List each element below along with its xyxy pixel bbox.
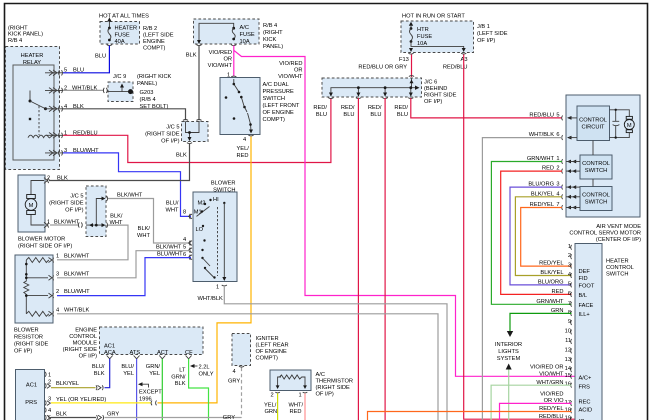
svg-text:RED/: RED/ <box>394 105 408 111</box>
svg-text:COMPT): COMPT) <box>143 46 166 52</box>
svg-text:(RIGHT SIDE: (RIGHT SIDE <box>316 385 351 391</box>
svg-text:5: 5 <box>183 245 186 251</box>
svg-text:BLK/WHT: BLK/WHT <box>64 271 90 277</box>
svg-text:IGNITER: IGNITER <box>256 336 279 342</box>
svg-text:BLK/WHT: BLK/WHT <box>117 193 143 199</box>
svg-text:REC: REC <box>579 399 591 405</box>
svg-text:1: 1 <box>299 393 302 399</box>
svg-text:BLU: BLU <box>397 112 408 118</box>
svg-text:YEL (OR YEL/RED): YEL (OR YEL/RED) <box>56 397 106 403</box>
svg-text:3: 3 <box>568 263 571 269</box>
svg-text:M: M <box>29 203 34 209</box>
svg-text:CONTROL: CONTROL <box>606 265 634 271</box>
svg-text:OF I/P): OF I/P) <box>65 208 83 214</box>
svg-text:1: 1 <box>56 254 59 260</box>
svg-text:RED: RED <box>551 289 563 295</box>
svg-text:RED/BLU: RED/BLU <box>529 112 554 118</box>
svg-text:10A: 10A <box>240 39 250 45</box>
svg-text:15: 15 <box>565 373 571 379</box>
svg-text:A/C DUAL: A/C DUAL <box>263 82 289 88</box>
svg-text:GRN: GRN <box>265 409 278 415</box>
svg-text:ATS: ATS <box>130 350 141 356</box>
svg-text:2: 2 <box>271 393 274 399</box>
svg-text:7: 7 <box>568 301 571 307</box>
svg-text:HTR: HTR <box>417 27 429 33</box>
svg-text:2: 2 <box>56 289 59 295</box>
svg-text:5: 5 <box>568 281 571 287</box>
svg-text:OF I/P): OF I/P) <box>477 38 495 44</box>
svg-text:18: 18 <box>565 407 571 413</box>
svg-text:(RIGHT SIDE: (RIGHT SIDE <box>14 342 49 348</box>
svg-text:1996: 1996 <box>139 397 152 403</box>
svg-text:YEL/: YEL/ <box>237 146 250 152</box>
svg-text:11: 11 <box>565 338 571 344</box>
svg-text:CIRCUIT: CIRCUIT <box>581 125 605 131</box>
svg-text:OR: OR <box>223 57 232 63</box>
svg-text:SYSTEM: SYSTEM <box>497 356 521 362</box>
svg-text:2: 2 <box>48 379 51 385</box>
svg-text:CONTROL SERVO MOTOR: CONTROL SERVO MOTOR <box>569 231 641 237</box>
svg-text:(LEFT SIDE: (LEFT SIDE <box>143 33 174 39</box>
svg-text:BLU/ORG: BLU/ORG <box>538 279 564 285</box>
svg-text:RED: RED <box>237 153 249 159</box>
svg-text:PRESSURE: PRESSURE <box>263 89 294 95</box>
svg-text:3: 3 <box>48 397 51 403</box>
svg-text:KICK PANEL): KICK PANEL) <box>8 32 43 38</box>
svg-text:19: 19 <box>565 416 571 420</box>
svg-text:RIGHT SIDE: RIGHT SIDE <box>424 93 457 99</box>
svg-text:COMPT): COMPT) <box>263 117 286 123</box>
svg-text:FACE: FACE <box>579 303 594 309</box>
svg-text:4: 4 <box>568 272 571 278</box>
svg-text:(R/B 4: (R/B 4 <box>140 97 156 103</box>
svg-text:BLK: BLK <box>186 53 197 59</box>
svg-text:SWITCH: SWITCH <box>263 96 285 102</box>
svg-text:EXCEPT: EXCEPT <box>139 390 162 396</box>
svg-text:13: 13 <box>565 357 571 363</box>
svg-text:R/B 4: R/B 4 <box>8 38 22 44</box>
svg-text:VIO/RED OR: VIO/RED OR <box>530 365 564 371</box>
svg-text:BLK: BLK <box>175 381 186 387</box>
svg-text:1: 1 <box>48 372 51 378</box>
svg-text:M1: M1 <box>194 210 202 216</box>
svg-text:ACT: ACT <box>157 350 169 356</box>
svg-text:VIO/WHT: VIO/WHT <box>208 63 233 69</box>
svg-text:PRS: PRS <box>25 400 37 406</box>
svg-text:INTERIOR: INTERIOR <box>495 342 522 348</box>
svg-text:YEL: YEL <box>149 371 160 377</box>
svg-text:ILL+: ILL+ <box>579 312 591 318</box>
svg-text:(CENTER OF I/P): (CENTER OF I/P) <box>596 237 641 243</box>
svg-text:BLK/: BLK/ <box>138 226 151 232</box>
svg-text:J/C 6: J/C 6 <box>424 80 437 86</box>
svg-text:THERMISTOR: THERMISTOR <box>316 379 354 385</box>
svg-text:CONTROL: CONTROL <box>579 118 607 124</box>
svg-text:ACA: ACA <box>104 350 116 356</box>
svg-text:VIO/RED: VIO/RED <box>279 61 302 67</box>
svg-text:WHT: WHT <box>166 208 179 214</box>
svg-text:J/C 9: J/C 9 <box>113 74 126 80</box>
svg-text:(RIGHT SIDE: (RIGHT SIDE <box>145 132 180 138</box>
svg-text:1: 1 <box>568 244 571 250</box>
svg-text:GRY: GRY <box>107 412 119 418</box>
svg-text:ACID: ACID <box>579 407 593 413</box>
svg-text:MODULE: MODULE <box>73 341 98 347</box>
svg-text:1: 1 <box>216 285 219 291</box>
svg-text:VIO/WHT: VIO/WHT <box>278 74 303 80</box>
svg-text:J/C 5: J/C 5 <box>166 125 179 131</box>
svg-text:OF I/P): OF I/P) <box>161 139 179 145</box>
svg-text:2: 2 <box>568 253 571 259</box>
svg-text:(RIGHT: (RIGHT <box>263 30 283 36</box>
svg-text:4: 4 <box>48 408 51 414</box>
svg-text:OF ENGINE: OF ENGINE <box>263 110 294 116</box>
svg-text:AIR VENT MODE: AIR VENT MODE <box>596 224 641 230</box>
svg-text:RED: RED <box>290 409 302 415</box>
svg-text:BLK/WHT: BLK/WHT <box>156 245 182 251</box>
svg-text:8: 8 <box>183 210 186 216</box>
svg-text:PANEL): PANEL) <box>263 44 283 50</box>
svg-text:LO: LO <box>196 227 204 233</box>
svg-text:3: 3 <box>56 271 59 277</box>
svg-text:4: 4 <box>183 237 186 243</box>
svg-text:(RIGHT SIDE: (RIGHT SIDE <box>63 347 98 353</box>
svg-text:M: M <box>627 123 632 129</box>
svg-text:HOT IN RUN OR START: HOT IN RUN OR START <box>402 14 465 20</box>
svg-text:BLU: BLU <box>343 112 354 118</box>
svg-text:(BEHIND: (BEHIND <box>424 86 447 92</box>
svg-text:R/B 4: R/B 4 <box>263 23 277 29</box>
svg-text:FID: FID <box>579 276 588 282</box>
svg-text:GRY: GRY <box>223 415 235 420</box>
svg-text:HI: HI <box>213 197 219 203</box>
svg-text:ONLY: ONLY <box>199 372 214 378</box>
svg-text:AC1: AC1 <box>26 383 37 389</box>
svg-text:KICK: KICK <box>263 37 276 43</box>
svg-text:HEATER: HEATER <box>606 259 629 265</box>
svg-text:B/L: B/L <box>579 293 588 299</box>
svg-text:BLU/: BLU/ <box>166 201 179 207</box>
svg-text:VIO/RED: VIO/RED <box>540 391 563 397</box>
svg-text:WHT/: WHT/ <box>289 403 304 409</box>
svg-text:1: 1 <box>47 220 50 226</box>
svg-text:COMPT): COMPT) <box>256 356 279 362</box>
svg-text:GRN/: GRN/ <box>171 375 186 381</box>
svg-text:5: 5 <box>48 416 51 420</box>
svg-text:WHT/BLK: WHT/BLK <box>198 296 223 302</box>
svg-text:ENGINE: ENGINE <box>143 39 165 45</box>
svg-text:DEF: DEF <box>579 269 591 275</box>
svg-text:VIO/WHT: VIO/WHT <box>539 371 564 377</box>
svg-text:CONTROL: CONTROL <box>582 193 610 199</box>
svg-text:BLOWER MOTOR: BLOWER MOTOR <box>18 237 65 243</box>
svg-text:BLOWER: BLOWER <box>211 181 236 187</box>
svg-text:J/B 1: J/B 1 <box>477 24 490 30</box>
svg-text:G203: G203 <box>140 90 154 96</box>
svg-text:9: 9 <box>568 319 571 325</box>
svg-text:VIO/RED: VIO/RED <box>209 50 232 56</box>
svg-text:2.2L: 2.2L <box>199 365 210 371</box>
svg-text:BLU/WHT: BLU/WHT <box>157 252 183 258</box>
svg-text:YEL/: YEL/ <box>264 403 277 409</box>
svg-text:OF I/P): OF I/P) <box>424 99 442 105</box>
svg-text:(RIGHT SIDE OF I/P): (RIGHT SIDE OF I/P) <box>18 244 72 250</box>
svg-text:4: 4 <box>233 369 236 375</box>
svg-text:OF I/P): OF I/P) <box>14 349 32 355</box>
svg-text:AC1: AC1 <box>104 344 115 350</box>
svg-text:J/C 5: J/C 5 <box>70 194 83 200</box>
svg-text:BLK: BLK <box>56 412 67 418</box>
svg-text:BLU/: BLU/ <box>121 364 134 370</box>
svg-text:HEATER: HEATER <box>21 53 44 59</box>
svg-text:BLK: BLK <box>176 153 187 159</box>
svg-text:10: 10 <box>565 329 571 335</box>
svg-text:BLK/YEL: BLK/YEL <box>56 381 79 387</box>
svg-text:5: 5 <box>556 112 559 118</box>
svg-text:GRN/: GRN/ <box>146 364 161 370</box>
svg-text:SWITCH: SWITCH <box>606 272 628 278</box>
svg-text:40A: 40A <box>115 39 125 45</box>
svg-text:YEL: YEL <box>123 371 134 377</box>
svg-text:R/B 2: R/B 2 <box>143 26 157 32</box>
svg-text:A/C: A/C <box>316 372 325 378</box>
svg-text:BLK/WHT: BLK/WHT <box>64 254 90 260</box>
svg-text:LIGHTS: LIGHTS <box>498 349 519 355</box>
svg-text:RED/BLU OR GRY: RED/BLU OR GRY <box>358 65 407 71</box>
svg-text:BLK/YEL: BLK/YEL <box>540 270 563 276</box>
svg-text:BLOWER: BLOWER <box>14 328 39 334</box>
svg-text:CF: CF <box>185 350 193 356</box>
svg-text:14: 14 <box>565 366 571 372</box>
svg-text:FOOT: FOOT <box>579 284 595 290</box>
svg-text:BLU: BLU <box>95 54 106 60</box>
svg-text:BLK: BLK <box>94 371 105 377</box>
svg-text:OF I/P): OF I/P) <box>316 392 334 398</box>
svg-text:RED/BLU: RED/BLU <box>539 414 564 420</box>
svg-text:12: 12 <box>565 347 571 353</box>
svg-text:(RIGHT KICK: (RIGHT KICK <box>137 74 172 80</box>
svg-text:(RIGHT SIDE: (RIGHT SIDE <box>49 201 84 207</box>
svg-text:GRN/WHT: GRN/WHT <box>536 299 564 305</box>
svg-text:HOT AT ALL TIMES: HOT AT ALL TIMES <box>99 14 149 20</box>
svg-text:2: 2 <box>47 176 50 182</box>
svg-text:BLU/: BLU/ <box>92 364 105 370</box>
svg-text:CONTROL: CONTROL <box>582 161 610 167</box>
svg-text:CONTROL: CONTROL <box>69 334 97 340</box>
svg-text:FUSE: FUSE <box>240 32 255 38</box>
svg-text:BLU: BLU <box>370 112 381 118</box>
svg-text:OR: OR <box>294 68 303 74</box>
svg-text:ENGINE: ENGINE <box>75 328 97 334</box>
svg-text:RED/: RED/ <box>368 105 382 111</box>
svg-text:WHT/BLK: WHT/BLK <box>64 307 89 313</box>
svg-text:BLU/WHT: BLU/WHT <box>64 289 90 295</box>
svg-text:FRS: FRS <box>579 384 591 390</box>
svg-text:A/C: A/C <box>240 25 249 31</box>
svg-text:(LEFT REAR: (LEFT REAR <box>256 343 289 349</box>
svg-text:LT: LT <box>179 368 186 374</box>
svg-text:SWITCH: SWITCH <box>585 200 607 206</box>
svg-text:PANEL): PANEL) <box>137 81 157 87</box>
svg-text:OF I/P): OF I/P) <box>79 354 97 360</box>
svg-text:BLK: BLK <box>57 176 68 182</box>
svg-text:BLK/: BLK/ <box>110 214 123 220</box>
svg-text:SWITCH: SWITCH <box>585 168 607 174</box>
svg-text:WHT: WHT <box>137 233 150 239</box>
svg-text:F13: F13 <box>399 57 409 63</box>
svg-text:RED/YEL: RED/YEL <box>539 261 563 267</box>
svg-text:(LEFT FRONT: (LEFT FRONT <box>263 103 300 109</box>
svg-text:OF ENGINE: OF ENGINE <box>256 349 287 355</box>
svg-text:GRY: GRY <box>228 379 240 385</box>
svg-text:RED/: RED/ <box>313 105 327 111</box>
svg-text:A/C+: A/C+ <box>579 375 592 381</box>
svg-text:10A: 10A <box>417 41 427 47</box>
svg-text:RESISTOR: RESISTOR <box>14 335 43 341</box>
svg-text:6: 6 <box>568 291 571 297</box>
svg-text:4: 4 <box>243 137 246 143</box>
svg-text:FUSE: FUSE <box>115 33 130 39</box>
svg-text:RED/: RED/ <box>341 105 355 111</box>
svg-text:(LEFT SIDE: (LEFT SIDE <box>477 31 508 37</box>
svg-text:HEATER: HEATER <box>115 26 138 32</box>
svg-text:FUSE: FUSE <box>417 34 432 40</box>
svg-text:4: 4 <box>56 307 59 313</box>
svg-text:BLU: BLU <box>316 112 327 118</box>
